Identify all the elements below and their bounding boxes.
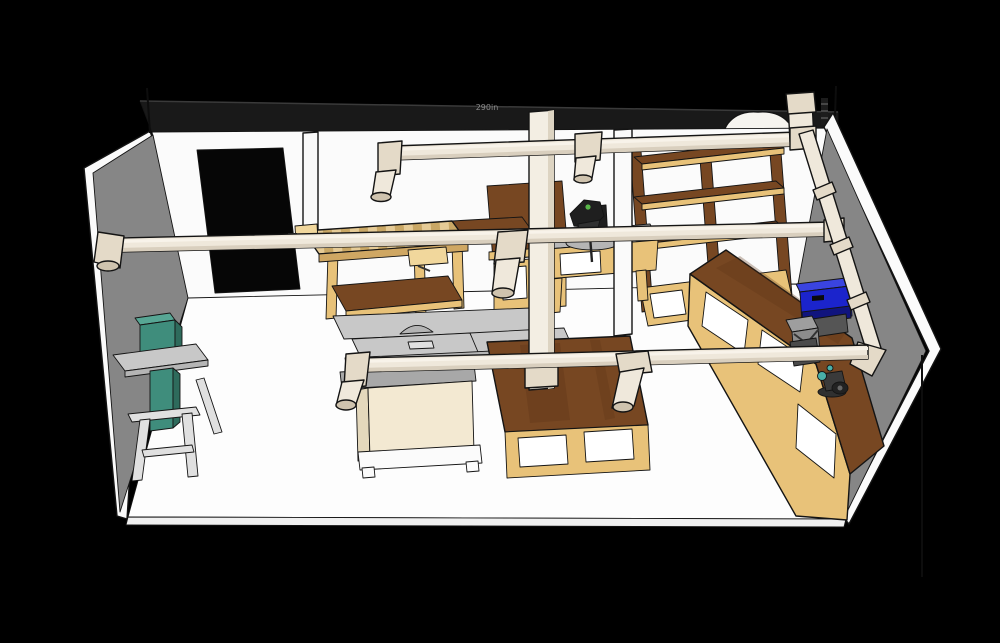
mid-left-open-end [97,261,119,271]
assembly-cubby-1 [518,435,568,467]
planer-label [812,295,824,301]
saw-foot-right [466,461,479,472]
mid-tee-open-end [492,288,514,298]
front-vise [408,247,448,266]
throat-plate [408,341,434,349]
workshop-3d-render: 290in [0,0,1000,643]
shelf-base-cubby-1 [650,290,686,318]
grinder-wheel-teal [818,372,827,381]
dimension-label: 290in [476,103,499,112]
assembly-cubby-2 [584,429,634,462]
floor-front-edge [126,517,846,527]
grinder-disc-hub [838,386,843,391]
low-left-open-end [336,400,356,410]
workshop-scene: 290in [0,0,1000,643]
flex-hose-coil [821,98,828,125]
grinder-knob-teal [827,365,833,371]
bandsaw-lower-housing [150,368,173,431]
doorway [197,148,300,293]
riser-elbow [786,92,816,114]
miter-leg-right [636,270,648,301]
saw-foot-left [362,467,375,478]
miter-switch-dot [585,204,590,209]
top-left-open-end [371,193,391,202]
miter-cubby [560,251,601,275]
top-tee-open-end [574,175,592,183]
bandsaw-lower-side [173,368,180,428]
low-branch-open-end [613,402,633,412]
support-post-left [303,132,318,233]
